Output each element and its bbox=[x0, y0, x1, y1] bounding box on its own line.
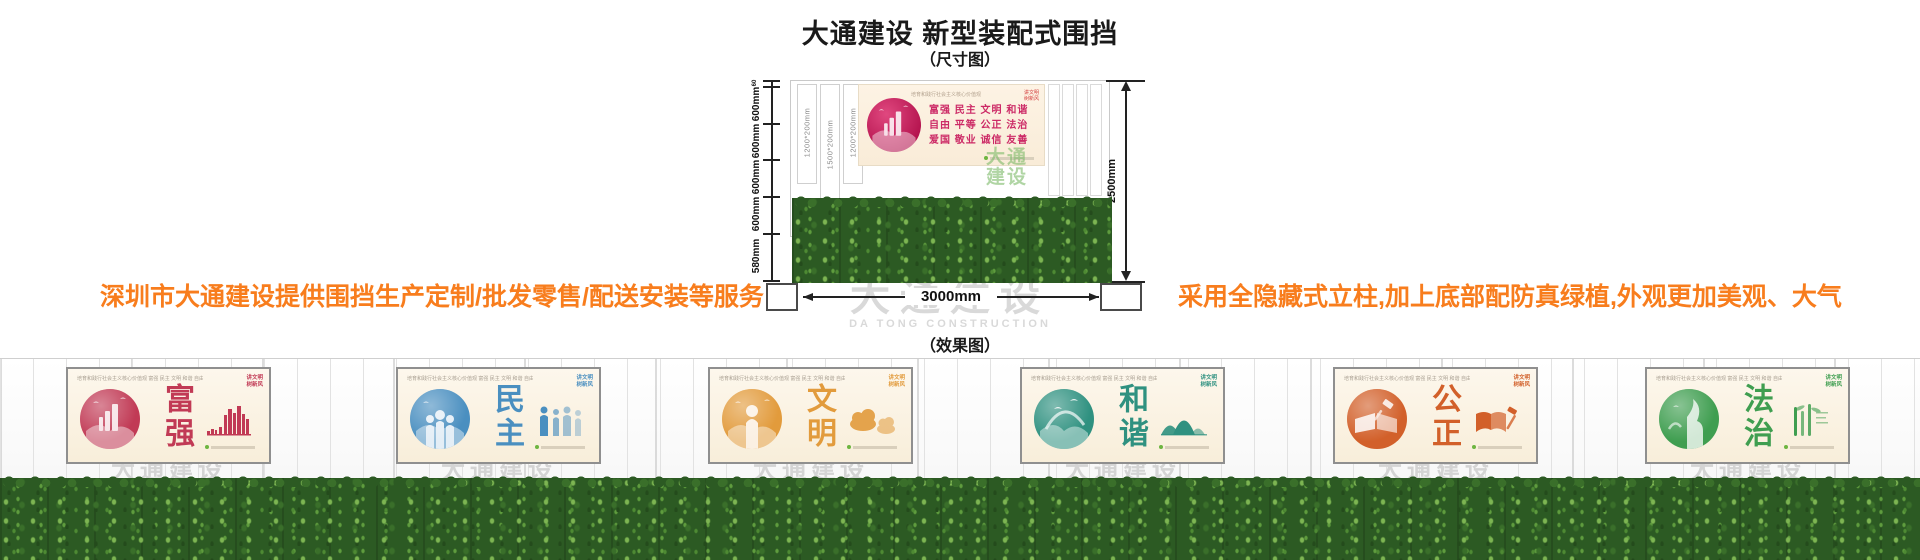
values-text: 富强 民主 文明 和谐 自由 平等 公正 法治 爱国 敬业 诚信 友善 bbox=[929, 103, 1028, 148]
city-illustration-circle bbox=[867, 98, 921, 152]
city-skyline-icon bbox=[207, 404, 253, 436]
panel-header-text: 培育和践行社会主义核心价值观 富强 民主 文明 和谐 自由 平等 公正 法治 爱… bbox=[407, 375, 533, 382]
green-logo-watermark: 大通 建设 bbox=[986, 148, 1028, 188]
green-dot-icon bbox=[1159, 445, 1163, 449]
panel-fine-print bbox=[847, 445, 897, 449]
panel-fine-print bbox=[1472, 445, 1522, 449]
fence-panel-gongzheng: 培育和践行社会主义核心价值观 富强 民主 文明 和谐 自由 平等 公正 法治 爱… bbox=[1333, 367, 1538, 464]
dimension-caption: （尺寸图） bbox=[0, 46, 1920, 70]
panel-fine-print bbox=[205, 445, 255, 449]
people-hands-icon bbox=[537, 404, 583, 436]
green-dot-icon bbox=[535, 445, 539, 449]
right-dimension-line bbox=[1125, 84, 1127, 278]
panel-illustration-circle bbox=[722, 389, 782, 449]
feature-note: 采用全隐藏式立柱,加上底部配防真绿植,外观更加美观、大气 bbox=[1178, 277, 1842, 313]
panel-header-text: 培育和践行社会主义核心价值观 富强 民主 文明 和谐 自由 平等 公正 法治 爱… bbox=[77, 375, 203, 382]
panel-corner-slogan: 讲文明树新风 bbox=[246, 375, 263, 389]
effect-caption: （效果图） bbox=[0, 332, 1920, 356]
panel-corner-slogan: 讲文明树新风 bbox=[576, 375, 593, 389]
panel-header-text: 培育和践行社会主义核心价值观 富强 民主 文明 和谐 自由 平等 公正 法治 爱… bbox=[1031, 375, 1157, 382]
poster: 大通建设 新型装配式围挡 （尺寸图） 深圳市大通建设提供围挡生产定制/批发零售/… bbox=[0, 0, 1920, 560]
plain-slat bbox=[1090, 84, 1102, 196]
book-gavel-icon bbox=[1474, 404, 1520, 436]
panel-value-word: 法治 bbox=[1733, 383, 1777, 451]
plain-slat bbox=[1076, 84, 1088, 196]
arrow-up-icon bbox=[1121, 81, 1131, 91]
fence-panel-hexie: 培育和践行社会主义核心价值观 富强 民主 文明 和谐 自由 平等 公正 法治 爱… bbox=[1020, 367, 1225, 464]
artificial-hedge bbox=[0, 478, 1920, 560]
fence-foot-left bbox=[766, 283, 798, 311]
green-dot-icon bbox=[205, 445, 209, 449]
panel-value-word: 和谐 bbox=[1108, 383, 1152, 451]
panel-illustration-circle bbox=[80, 389, 140, 449]
panel-header-text: 培育和践行社会主义核心价值观 富强 民主 文明 和谐 自由 平等 公正 法治 爱… bbox=[719, 375, 845, 382]
slat-1200: 1200*200mm bbox=[797, 84, 817, 184]
panel-value-word: 公正 bbox=[1421, 383, 1465, 451]
panel-header-text: 培育和践行社会主义核心价值观 富强 民主 文明 和谐 自由 平等 公正 法治 爱… bbox=[1344, 375, 1470, 382]
dim-3000: 3000mm bbox=[905, 288, 997, 305]
plain-slat bbox=[1062, 84, 1074, 196]
service-note: 深圳市大通建设提供围挡生产定制/批发零售/配送安装等服务 bbox=[100, 277, 764, 313]
clouds-icon bbox=[849, 404, 895, 436]
panel-header-text: 培育和践行社会主义核心价值观 富强 民主 文明 和谐 自由 平等 公正 法治 爱… bbox=[1656, 375, 1782, 382]
panel-illustration-circle bbox=[1659, 389, 1719, 449]
fence-foot-right bbox=[1100, 283, 1142, 311]
arrow-down-icon bbox=[1121, 271, 1131, 281]
panel-value-word: 文明 bbox=[796, 383, 840, 451]
panel-value-word: 富强 bbox=[154, 383, 198, 451]
arrow-left-icon bbox=[803, 293, 813, 301]
mountains-icon bbox=[1161, 404, 1207, 436]
green-dot-icon bbox=[1472, 445, 1476, 449]
left-dimension-line bbox=[771, 80, 773, 281]
plain-slat bbox=[1048, 84, 1060, 196]
fence-panel-wenming: 培育和践行社会主义核心价值观 富强 民主 文明 和谐 自由 平等 公正 法治 爱… bbox=[708, 367, 913, 464]
fence-panel-fazhi: 培育和践行社会主义核心价值观 富强 民主 文明 和谐 自由 平等 公正 法治 爱… bbox=[1645, 367, 1850, 464]
green-dot-icon bbox=[847, 445, 851, 449]
diagram-hedge bbox=[792, 198, 1112, 283]
arrow-right-icon bbox=[1089, 293, 1099, 301]
panel-fine-print bbox=[1159, 445, 1209, 449]
dim-580: 580mm bbox=[751, 229, 763, 283]
panel-fine-print bbox=[1784, 445, 1834, 449]
fence-panel-fuqiang: 培育和践行社会主义核心价值观 富强 民主 文明 和谐 自由 平等 公正 法治 爱… bbox=[66, 367, 271, 464]
banner-corner-slogan: 讲文明 树新风 bbox=[1024, 90, 1039, 102]
panel-corner-slogan: 讲文明树新风 bbox=[1825, 375, 1842, 389]
panel-fine-print bbox=[535, 445, 585, 449]
panel-corner-slogan: 讲文明树新风 bbox=[1200, 375, 1217, 389]
panel-illustration-circle bbox=[1034, 389, 1094, 449]
panel-illustration-circle bbox=[410, 389, 470, 449]
bamboo-icon bbox=[1786, 404, 1832, 436]
panel-corner-slogan: 讲文明树新风 bbox=[1513, 375, 1530, 389]
panel-illustration-circle bbox=[1347, 389, 1407, 449]
panel-corner-slogan: 讲文明树新风 bbox=[888, 375, 905, 389]
banner-header-text: 培育和践行社会主义核心价值观 bbox=[911, 91, 981, 98]
fence-panel-minzhu: 培育和践行社会主义核心价值观 富强 民主 文明 和谐 自由 平等 公正 法治 爱… bbox=[396, 367, 601, 464]
panel-value-word: 民主 bbox=[484, 383, 528, 451]
green-dot-icon bbox=[1784, 445, 1788, 449]
